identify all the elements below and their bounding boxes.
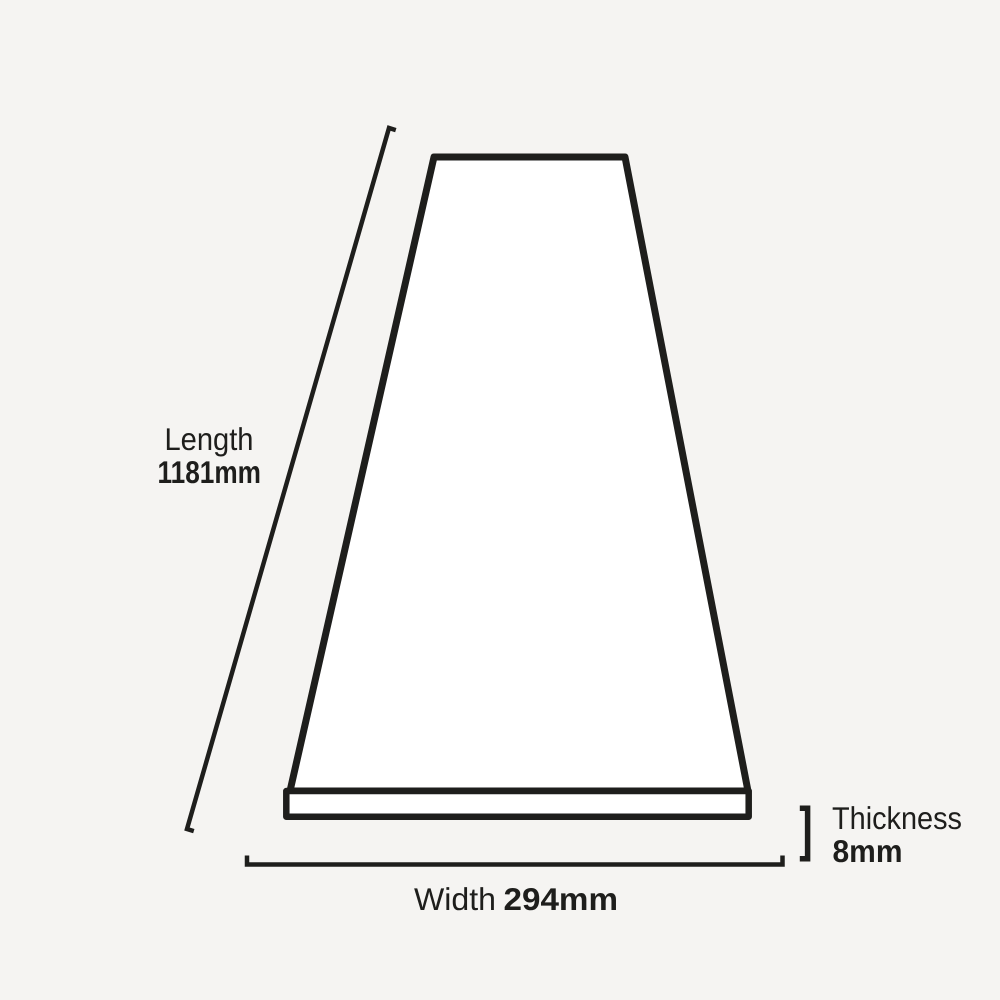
- svg-text:8mm: 8mm: [833, 833, 903, 869]
- svg-text:Length: Length: [165, 421, 254, 457]
- svg-text:1181mm: 1181mm: [158, 454, 262, 490]
- svg-text:Width: Width: [414, 881, 496, 917]
- svg-text:Thickness: Thickness: [832, 800, 962, 836]
- svg-text:294mm: 294mm: [504, 881, 619, 917]
